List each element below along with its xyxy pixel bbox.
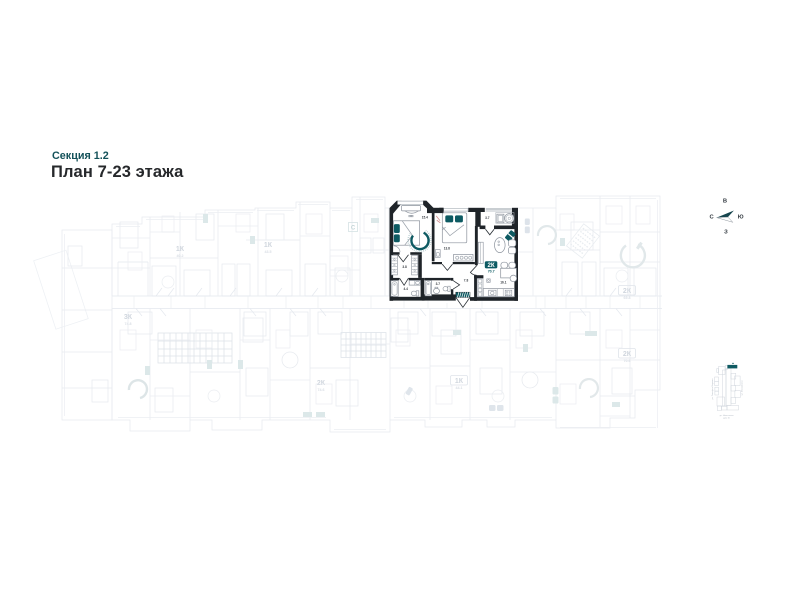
svg-text:13.8: 13.8 xyxy=(444,247,450,251)
svg-text:3К: 3К xyxy=(124,314,133,321)
svg-text:План 7-23 этажа: План 7-23 этажа xyxy=(51,163,184,181)
svg-text:16.1: 16.1 xyxy=(500,280,506,284)
svg-text:44.1: 44.1 xyxy=(456,386,463,390)
svg-text:40.2: 40.2 xyxy=(177,254,184,258)
svg-text:2К: 2К xyxy=(623,351,632,358)
svg-text:1К: 1К xyxy=(176,246,185,253)
svg-text:15.4: 15.4 xyxy=(422,216,428,220)
svg-text:2К: 2К xyxy=(487,262,494,269)
svg-text:С: С xyxy=(351,226,356,232)
svg-text:Секция 1.2: Секция 1.2 xyxy=(52,150,109,162)
svg-text:3.7: 3.7 xyxy=(485,216,490,220)
svg-text:69.8: 69.8 xyxy=(624,296,631,300)
svg-text:1К: 1К xyxy=(455,378,464,385)
svg-text:70.6: 70.6 xyxy=(624,359,631,363)
svg-text:З: З xyxy=(724,230,728,236)
svg-text:2К: 2К xyxy=(317,380,326,387)
svg-text:4.4: 4.4 xyxy=(403,287,408,291)
svg-text:ул. Московская: ул. Московская xyxy=(742,381,744,396)
svg-text:дом 10: дом 10 xyxy=(723,417,731,419)
svg-text:3.8: 3.8 xyxy=(402,265,407,269)
svg-text:В: В xyxy=(723,199,727,205)
svg-text:ул. Тимофея Чаркова: ул. Тимофея Чаркова xyxy=(711,378,714,400)
svg-text:1К: 1К xyxy=(264,242,273,249)
svg-text:3.7: 3.7 xyxy=(436,282,441,286)
svg-text:Ю: Ю xyxy=(738,214,744,220)
svg-text:43.5: 43.5 xyxy=(265,250,272,254)
svg-text:С: С xyxy=(710,214,715,220)
svg-text:2К: 2К xyxy=(623,288,632,295)
svg-text:7.8: 7.8 xyxy=(464,279,469,283)
svg-text:74.6: 74.6 xyxy=(318,388,325,392)
svg-text:70.7: 70.7 xyxy=(488,270,495,274)
